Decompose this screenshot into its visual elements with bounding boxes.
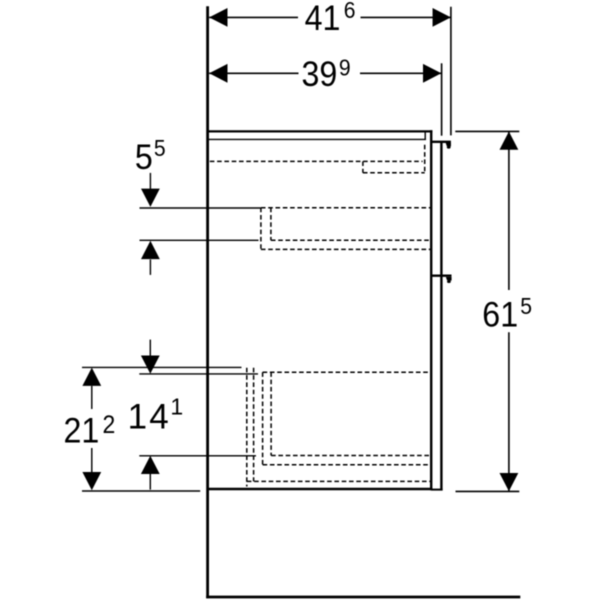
svg-text:41: 41: [305, 0, 341, 38]
svg-text:14: 14: [128, 398, 171, 437]
svg-text:39: 39: [302, 56, 338, 95]
svg-text:5: 5: [135, 139, 153, 178]
svg-text:61: 61: [482, 296, 518, 335]
svg-text:1: 1: [170, 394, 183, 420]
svg-text:2: 2: [103, 411, 116, 439]
svg-text:5: 5: [520, 293, 532, 319]
svg-text:5: 5: [154, 135, 166, 161]
svg-text:6: 6: [344, 0, 356, 23]
svg-text:9: 9: [339, 55, 351, 81]
svg-text:21: 21: [64, 412, 100, 451]
